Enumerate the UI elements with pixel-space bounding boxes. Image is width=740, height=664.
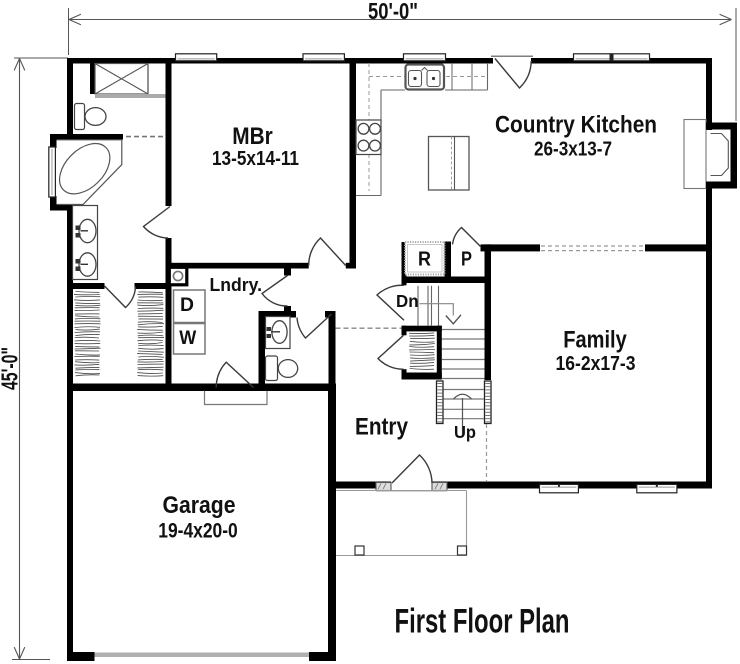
- svg-text:26-3x13-7: 26-3x13-7: [534, 139, 612, 161]
- svg-text:45'-0": 45'-0": [0, 347, 23, 390]
- svg-text:Country Kitchen: Country Kitchen: [495, 112, 657, 139]
- svg-text:MBr: MBr: [232, 123, 273, 150]
- svg-text:Family: Family: [563, 327, 627, 354]
- svg-text:13-5x14-11: 13-5x14-11: [212, 148, 299, 170]
- svg-text:First Floor Plan: First Floor Plan: [395, 603, 570, 641]
- svg-text:D: D: [180, 295, 194, 316]
- svg-text:Up: Up: [454, 422, 476, 442]
- svg-text:P: P: [461, 249, 472, 271]
- svg-text:W: W: [179, 328, 196, 349]
- svg-text:Dn: Dn: [396, 291, 419, 311]
- svg-text:19-4x20-0: 19-4x20-0: [158, 520, 238, 543]
- svg-text:Garage: Garage: [163, 492, 236, 519]
- svg-text:Lndry.: Lndry.: [210, 274, 263, 295]
- svg-text:Entry: Entry: [355, 414, 409, 441]
- svg-text:16-2x17-3: 16-2x17-3: [556, 353, 636, 375]
- svg-text:50'-0": 50'-0": [368, 0, 418, 24]
- svg-text:R: R: [418, 249, 431, 271]
